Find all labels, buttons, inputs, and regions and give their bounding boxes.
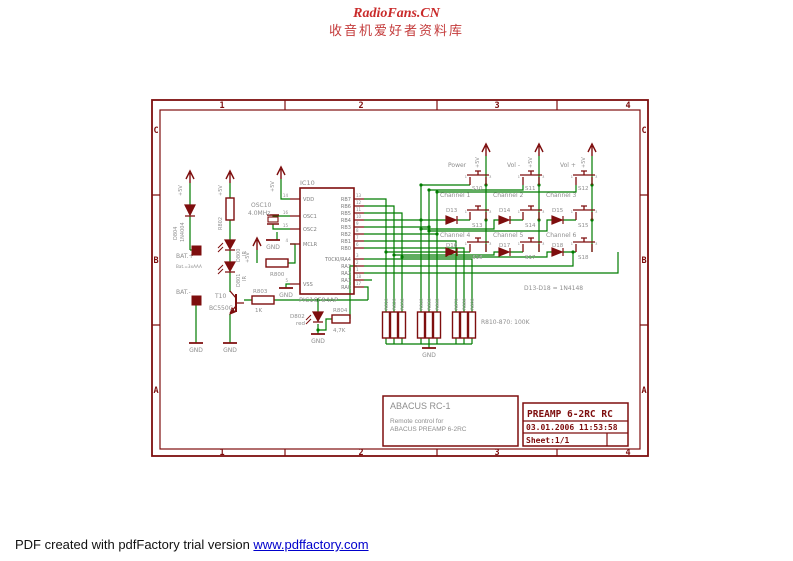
gnd-label: GND: [223, 347, 237, 354]
led-arrows-icon: [218, 243, 223, 252]
ic-pin-name: RB2: [341, 232, 351, 238]
battery-circuit: D804 1N4004 BAT.+ Bat.=3xAAA BAT.-: [173, 205, 202, 305]
frame-col-label: 3: [494, 101, 499, 111]
button-function-label: Channel 6: [546, 232, 577, 239]
ic-pin-name: OSC2: [303, 227, 317, 233]
oscillator: OSC10 4.0MHz: [248, 202, 279, 224]
pdf-watermark: PDF created with pdfFactory trial versio…: [15, 537, 369, 552]
switch-ref: S16: [472, 255, 483, 261]
ic-pin-name: RA1: [341, 278, 351, 284]
switch-ref: S15: [578, 223, 589, 229]
frame-col-label: 1: [219, 101, 224, 111]
ic-pin-number: 17: [356, 281, 362, 286]
network-note: R810-870: 100K: [481, 319, 531, 326]
schematic-canvas: 1 2 3 4 1 2 3 4 C B A C B A: [0, 0, 793, 561]
switch-ref: S18: [578, 255, 589, 261]
vcc-label: +5V: [475, 157, 481, 168]
ic-pin-name: RB6: [341, 204, 351, 210]
ic-pin-name: RA0: [341, 285, 351, 291]
switch-pin-number: 3: [489, 174, 492, 179]
ic-pin-number: 4: [285, 238, 288, 243]
r802-ref: R802: [218, 217, 224, 230]
vcc-arrow-icon: [588, 144, 596, 156]
resistor-r890: [469, 312, 476, 338]
r803-ref: R803: [253, 289, 268, 295]
osc-value: 4.0MHz: [248, 210, 270, 217]
ic-pin-number: 11: [356, 207, 362, 212]
network-resistor-ref: R840: [419, 298, 425, 310]
ic-pin-number: 10: [356, 214, 362, 219]
gnd-label: GND: [189, 347, 203, 354]
d802-ref: D802: [290, 314, 305, 320]
resistor-r880: [461, 312, 468, 338]
gnd-label: GND: [266, 244, 280, 251]
vcc-label: +5V: [581, 157, 587, 168]
network-resistor-ref: R810: [384, 298, 390, 310]
diode-d15: [552, 216, 563, 224]
button-function-label: Channel 3: [546, 192, 577, 199]
frame-row-label: B: [153, 256, 158, 266]
power-rails: +5V +5V +5V +5V +5V +5V +5V: [178, 144, 596, 263]
ic-pin-name: VSS: [303, 282, 313, 288]
frame-row-label: C: [641, 126, 646, 136]
vcc-label: +5V: [270, 181, 276, 192]
project-sub2: ABACUS PREAMP 6-2RC: [390, 426, 467, 433]
ic-pin-number: 18: [356, 274, 362, 279]
button-function-label: Power: [448, 162, 467, 169]
vcc-label: +5V: [178, 185, 184, 196]
ic-pin-name: RA3: [341, 264, 351, 270]
resistor-network: R810 R820 R830 R840 R850 R860 R870 R880 …: [383, 298, 531, 338]
doc-date: 03.01.2006 11:53:58: [526, 423, 618, 432]
gnd-label: GND: [311, 338, 325, 345]
led-d802: [313, 312, 323, 322]
ic-pin-name: T0CKI/RA4: [324, 257, 351, 263]
ic-pin-number: 2: [356, 260, 359, 265]
switch-pin-number: 3: [595, 241, 598, 246]
vcc-arrow-icon: [226, 171, 234, 183]
r804-value: 4,7K: [333, 328, 346, 334]
vcc-arrow-icon: [482, 144, 490, 156]
t10-ref: T10: [214, 293, 226, 300]
switch-pin-number: 3: [542, 241, 545, 246]
ic-pin-number: 8: [356, 228, 359, 233]
r803-value: 1K: [255, 308, 262, 314]
ic-pin-number: 13: [356, 193, 362, 198]
button-function-label: Channel 1: [440, 192, 471, 199]
ic-pin-number: 1: [356, 267, 359, 272]
led-d800: [225, 240, 235, 250]
resistor-r850: [426, 312, 433, 338]
switch-ref: S17: [525, 255, 536, 261]
osc-ref: OSC10: [251, 202, 272, 209]
d800-value: IR: [242, 251, 248, 256]
switch-ref: S12: [578, 186, 589, 192]
ic-pin-name: RB1: [341, 239, 351, 245]
button-function-label: Vol +: [560, 162, 576, 169]
ic-pin-number: 6: [356, 242, 359, 247]
resistor-r820: [391, 312, 398, 338]
frame-row-label: A: [641, 386, 646, 396]
ic-ref: IC10: [300, 179, 315, 187]
ic-pin-number: 5: [285, 278, 288, 283]
frame-col-label: 2: [358, 448, 363, 458]
pdffactory-link[interactable]: www.pdffactory.com: [253, 537, 368, 552]
project-title: ABACUS RC-1: [390, 401, 451, 411]
resistor-r803: [252, 296, 274, 304]
vcc-label: +5V: [218, 185, 224, 196]
diode-d14: [499, 216, 510, 224]
ic-pin-name: RB0: [341, 246, 351, 252]
ic10: IC10 PIC16F84AP VDD OSC1 OSC2 MCLR VSS 1…: [283, 179, 364, 304]
frame-row-label: C: [153, 126, 158, 136]
ic-pin-name: MCLR: [303, 242, 318, 248]
vcc-arrow-icon: [253, 238, 261, 250]
battery-minus-label: BAT.-: [176, 289, 191, 296]
battery-plus-label: BAT.+: [176, 253, 194, 260]
switch-pin-number: 3: [489, 209, 492, 214]
gnd-label: GND: [279, 292, 293, 299]
ic-pin-number: 9: [356, 221, 359, 226]
button-function-label: Channel 5: [493, 232, 524, 239]
switch-ref: S14: [525, 223, 536, 229]
diode-ref: D13: [446, 208, 458, 214]
frame-row-label: B: [641, 256, 646, 266]
network-resistor-ref: R850: [427, 298, 433, 310]
resistor-r810: [383, 312, 390, 338]
button-function-label: Vol -: [507, 162, 520, 169]
ic-part: PIC16F84AP: [299, 296, 338, 304]
frame-col-label: 1: [219, 448, 224, 458]
switch-pin-number: 3: [595, 174, 598, 179]
switch-pin-number: 3: [542, 174, 545, 179]
d804-ref: D804: [173, 227, 179, 240]
watermark-text: PDF created with pdfFactory trial versio…: [15, 537, 253, 552]
ic-pin-name: VDD: [303, 197, 314, 203]
button-function-label: Channel 4: [440, 232, 471, 239]
frame-col-label: 2: [358, 101, 363, 111]
network-resistor-ref: R880: [462, 298, 468, 310]
pdf-page: RadioFans.CN 收音机爱好者资料库 1 2 3 4 1 2 3 4 C…: [0, 0, 793, 561]
resistor-r870: [453, 312, 460, 338]
network-resistor-ref: R830: [400, 298, 406, 310]
resistor-r840: [418, 312, 425, 338]
vcc-arrow-icon: [186, 171, 194, 183]
network-resistor-ref: R860: [435, 298, 441, 310]
d804-value: 1N4004: [180, 222, 186, 242]
network-resistor-ref: R890: [470, 298, 476, 310]
r800-ref: R800: [270, 272, 285, 278]
diode-d13: [446, 216, 457, 224]
ic-pin-name: RA2: [341, 271, 351, 277]
led-arrows-icon: [306, 315, 311, 324]
diode-type-note: D13-D18 = 1N4148: [524, 285, 583, 292]
frame-col-label: 4: [625, 101, 630, 111]
frame-row-label: A: [153, 386, 158, 396]
ic-pin-number: 3: [356, 253, 359, 258]
diode-ref: D14: [499, 208, 511, 214]
resistor-r800: [266, 259, 288, 267]
ic-pin-number: 7: [356, 235, 359, 240]
resistor-r860: [434, 312, 441, 338]
vcc-arrow-icon: [277, 167, 285, 179]
frame-col-label: 3: [494, 448, 499, 458]
ic-pin-name: RB4: [341, 218, 351, 224]
led-d801: [225, 262, 235, 272]
switch-pin-number: 3: [489, 241, 492, 246]
d801-value: IR: [242, 276, 248, 281]
ic-pin-name: RB3: [341, 225, 351, 231]
resistor-r804: [332, 315, 350, 323]
switch-pin-number: 3: [542, 209, 545, 214]
gnd-label: GND: [422, 352, 436, 359]
vcc-label: +5V: [528, 157, 534, 168]
switch-ref: S11: [525, 186, 536, 192]
ic-pin-number: 14: [283, 193, 289, 198]
diode-ref: D15: [552, 208, 564, 214]
diode-d17: [499, 248, 510, 256]
title-block: ABACUS RC-1 Remote control for ABACUS PR…: [383, 396, 628, 446]
battery-minus-pad: [192, 296, 201, 305]
ic-pin-name: OSC1: [303, 214, 317, 220]
ic-pin-name: RB7: [341, 197, 351, 203]
reset-circuit: R800: [266, 259, 288, 278]
switch-ref: S13: [472, 223, 483, 229]
switch-pin-number: 3: [595, 209, 598, 214]
button-function-label: Channel 2: [493, 192, 524, 199]
network-resistor-ref: R820: [392, 298, 398, 310]
ic-pin-number: 12: [356, 200, 362, 205]
ic-pin-name: RB5: [341, 211, 351, 217]
ic-pin-number: 15: [283, 223, 289, 228]
resistor-r830: [399, 312, 406, 338]
battery-note: Bat.=3xAAA: [176, 264, 202, 269]
doc-sheet: Sheet:1/1: [526, 436, 570, 445]
t10-value: BC550C: [209, 305, 233, 312]
diode-d804: [185, 205, 195, 216]
project-sub1: Remote control for: [390, 418, 444, 425]
d802-value: red: [296, 321, 305, 327]
r804-ref: R804: [333, 308, 348, 314]
doc-name: PREAMP 6-2RC RC: [527, 409, 613, 420]
diode-d18: [552, 248, 563, 256]
switch-ref: S10: [472, 186, 483, 192]
vcc-arrow-icon: [535, 144, 543, 156]
resistor-r802: [226, 198, 234, 220]
frame-col-label: 4: [625, 448, 630, 458]
ic-pin-number: 16: [283, 210, 289, 215]
ic-pin-stubs: [290, 199, 364, 287]
led-arrows-icon: [218, 265, 223, 274]
network-resistor-ref: R870: [454, 298, 460, 310]
